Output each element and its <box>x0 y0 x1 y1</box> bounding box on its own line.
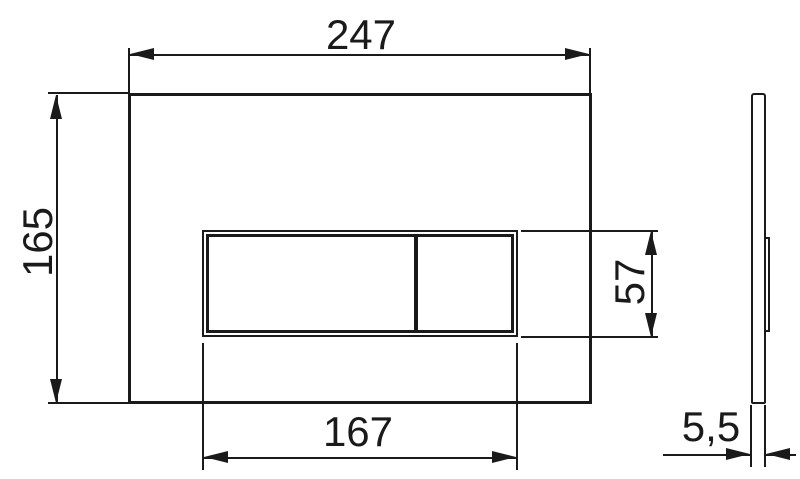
drawing-canvas: 247 165 167 57 5,5 <box>0 0 800 479</box>
dim-button-width-arrow-left <box>204 451 228 463</box>
dim-button-width-label: 167 <box>278 410 438 454</box>
dim-button-height-label: 57 <box>608 202 652 362</box>
dim-plate-height-label: 165 <box>16 162 60 322</box>
dim-button-width-line <box>203 457 517 459</box>
plate-side-outline <box>751 93 766 404</box>
dim-button-width-arrow-right <box>492 451 516 463</box>
dim-plate-width-arrow-right <box>565 48 589 60</box>
button-panel <box>202 230 518 337</box>
dim-plate-height-arrow-bottom <box>50 379 62 403</box>
dim-plate-height-extension-top <box>48 92 129 94</box>
dim-thickness-label: 5,5 <box>661 405 761 449</box>
dim-plate-height-arrow-top <box>50 95 62 119</box>
button-panel-inner-frame <box>206 234 514 333</box>
dim-plate-width-arrow-left <box>130 48 154 60</box>
dim-plate-width-label: 247 <box>281 13 441 57</box>
dim-button-width-extension-right <box>516 343 518 470</box>
button-divider <box>414 237 418 330</box>
dim-thickness-arrow-right <box>766 448 790 460</box>
